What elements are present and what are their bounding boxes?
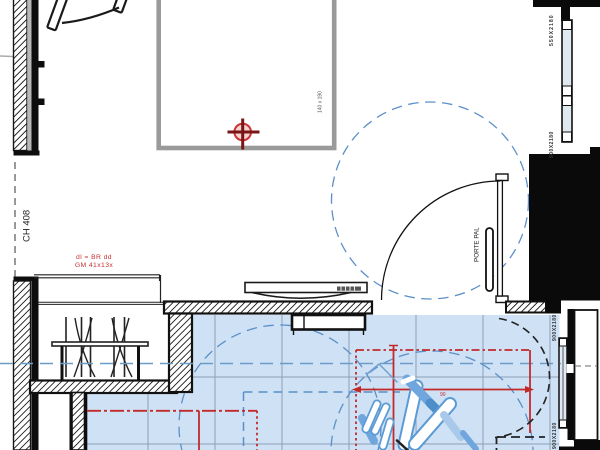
svg-text:900X2180: 900X2180: [552, 422, 558, 449]
svg-text:PORTE PAL: PORTE PAL: [474, 227, 481, 262]
svg-text:550X2180: 550X2180: [549, 14, 555, 46]
svg-text:90: 90: [440, 392, 446, 398]
svg-text:140 x 190: 140 x 190: [318, 91, 324, 113]
svg-text:GM 41x13x: GM 41x13x: [75, 262, 114, 269]
svg-text:900X2180: 900X2180: [552, 314, 558, 341]
svg-text:900X2180: 900X2180: [549, 131, 555, 158]
svg-text:CH 408: CH 408: [22, 210, 33, 242]
svg-text:dl = BR dd: dl = BR dd: [76, 254, 112, 261]
